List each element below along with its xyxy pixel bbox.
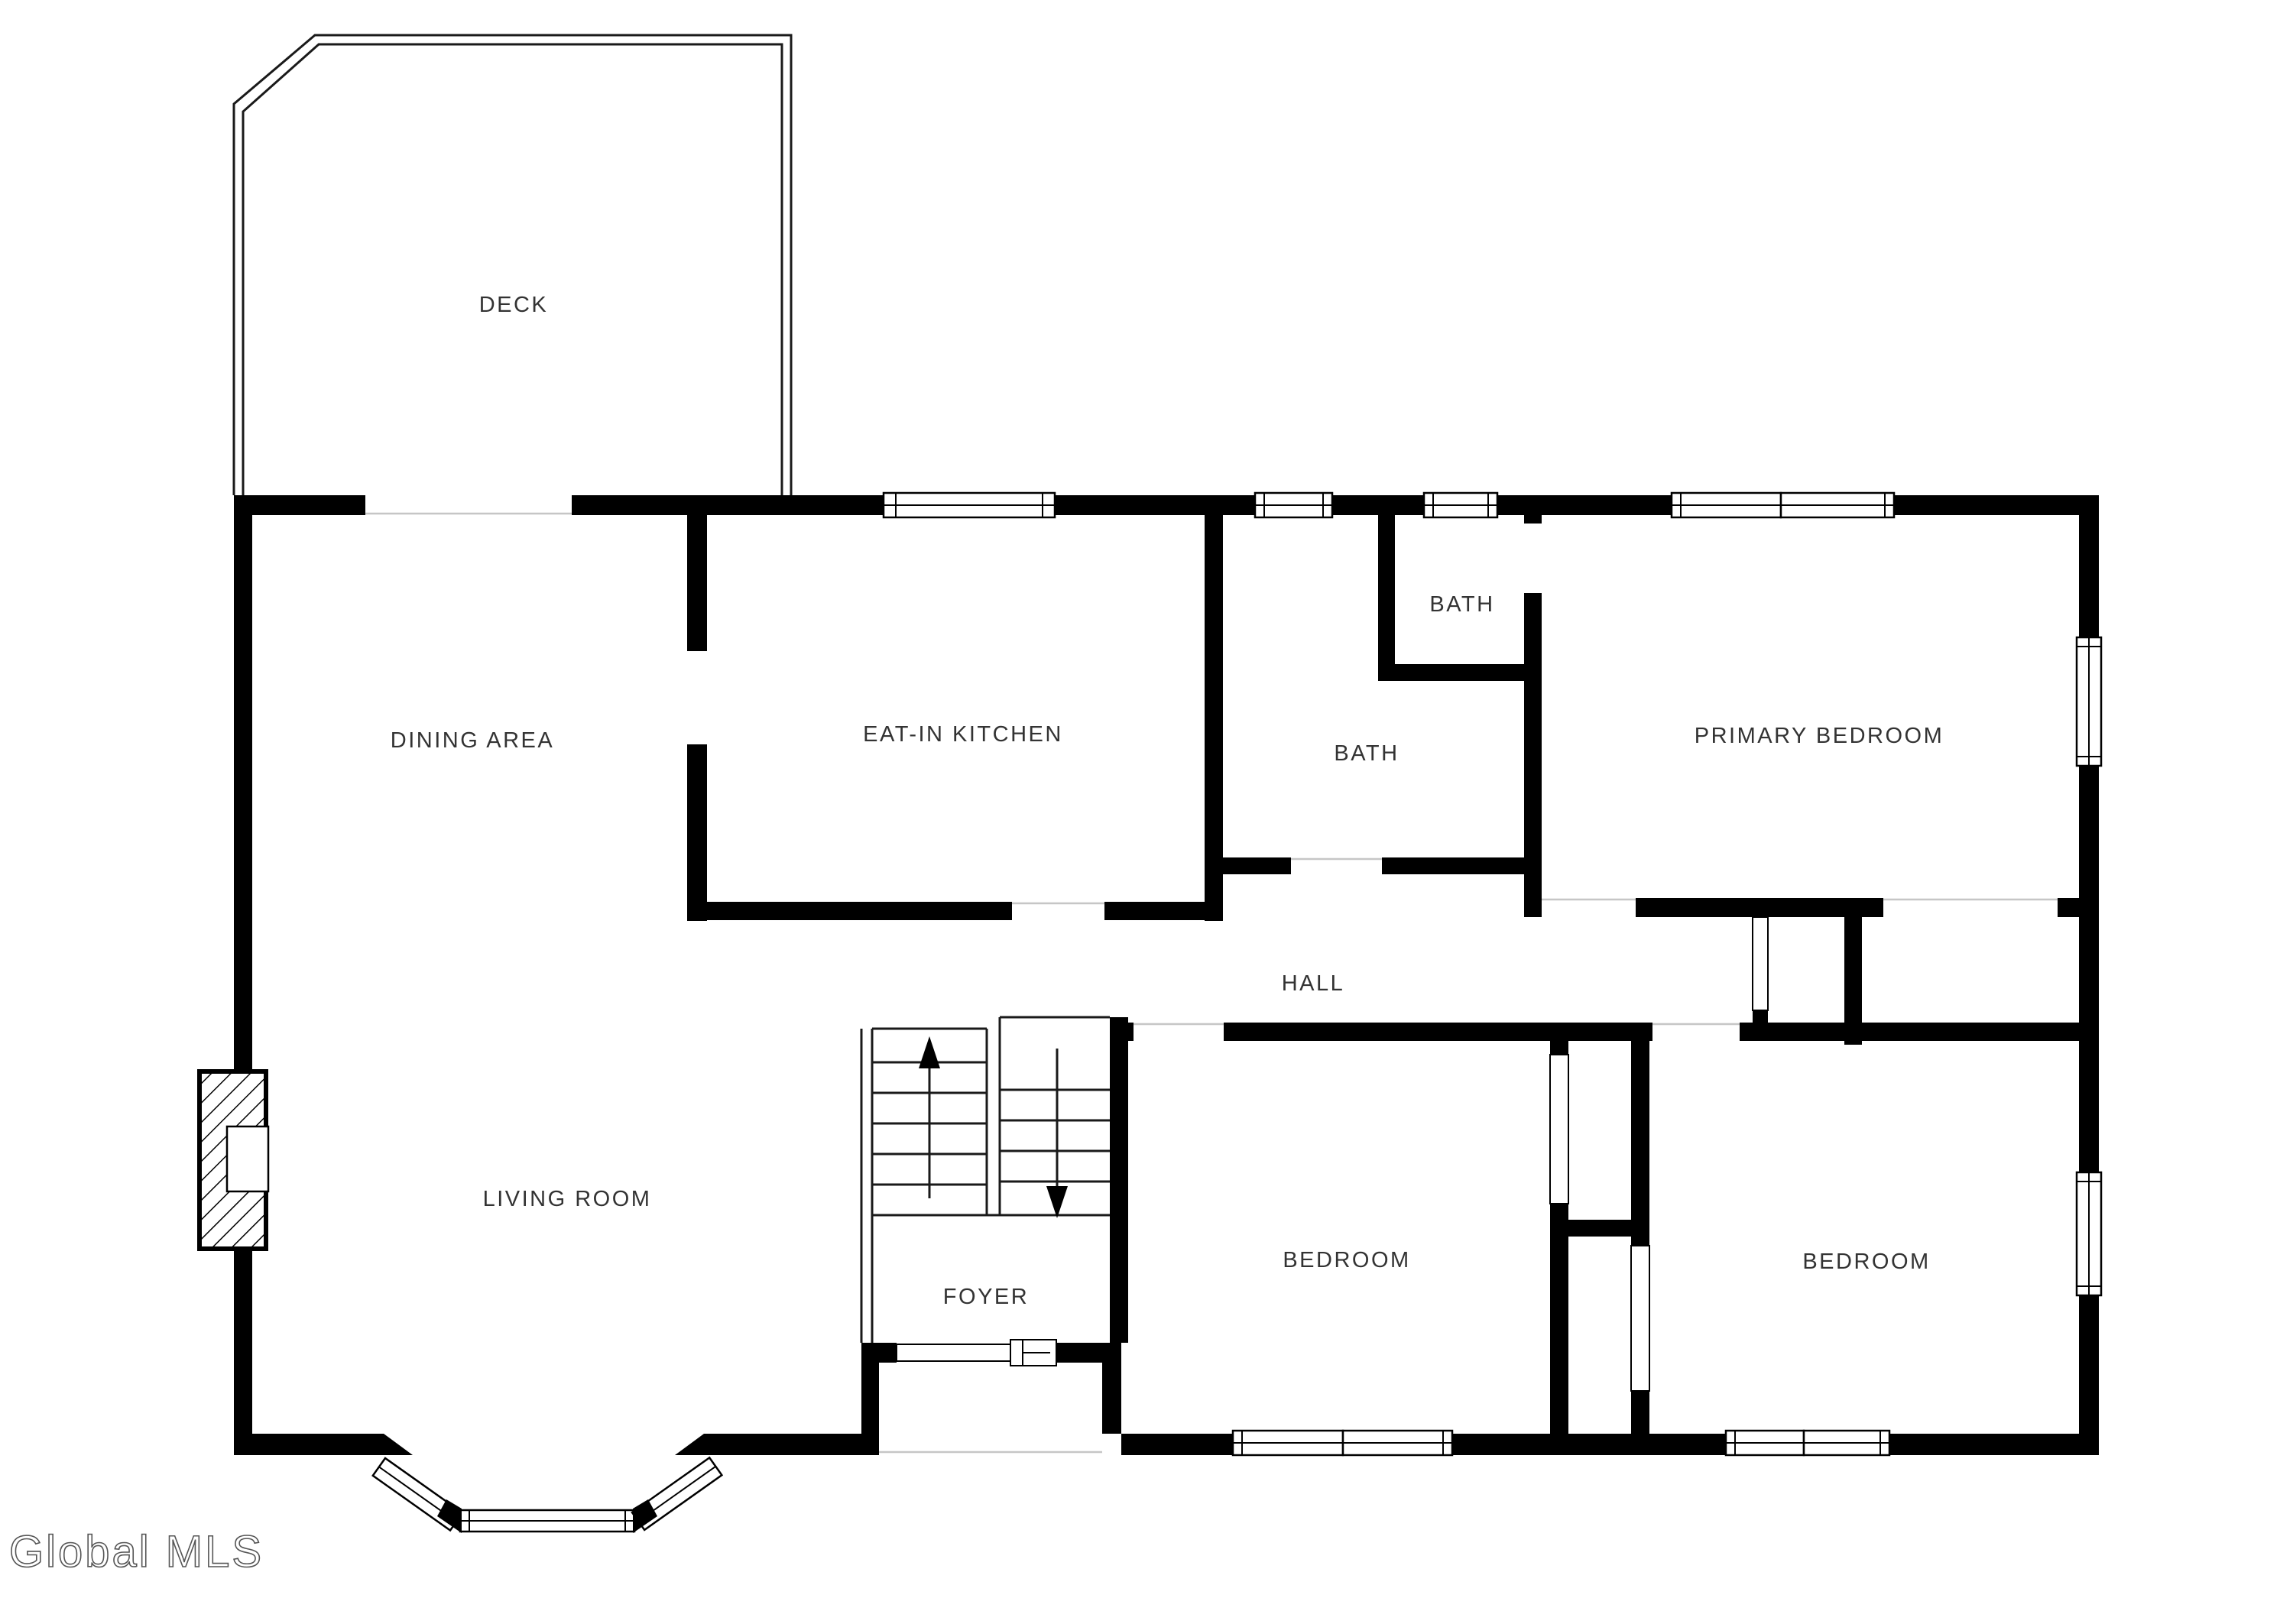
wall-stairs-right <box>1110 1017 1128 1343</box>
wall-bedroom1-right-stub <box>1550 1041 1568 1055</box>
wall-primary-south-right <box>2058 898 2099 917</box>
wall-bottom-between-bedrooms <box>1452 1434 1726 1455</box>
label-hall: HALL <box>1282 971 1345 996</box>
wall-upper-bath-bottom <box>1378 664 1542 681</box>
wall-primary-west <box>1524 593 1542 917</box>
primary-bedroom-double-window-top <box>1672 493 1894 517</box>
bay-window <box>373 1457 722 1533</box>
label-living-room: LIVING ROOM <box>483 1187 652 1211</box>
label-eat-in-kitchen: EAT-IN KITCHEN <box>863 722 1063 747</box>
wall-top-between-baths <box>1332 495 1424 515</box>
wall-bottom-bay-left <box>234 1434 413 1455</box>
label-bedroom-center: BEDROOM <box>1283 1248 1410 1272</box>
wall-primary-west-stub <box>1524 495 1542 524</box>
interior-walls <box>687 495 2099 1434</box>
stairs-down-arrow-icon <box>1046 1186 1068 1218</box>
wall-top-left-of-deck-door <box>234 495 365 515</box>
wall-bath-bottom-left <box>1205 857 1291 874</box>
label-bedroom-right: BEDROOM <box>1802 1250 1930 1274</box>
wall-right-upper <box>2079 495 2099 637</box>
wall-top-kitchen-left <box>572 495 884 515</box>
windows <box>373 493 2101 1533</box>
deck-outline <box>234 35 791 495</box>
exterior-walls <box>234 495 2099 1455</box>
wall-kitchen-left-lower <box>687 744 707 921</box>
label-deck: DECK <box>479 293 549 317</box>
fireplace-chimney <box>197 1069 268 1251</box>
bath-upper-window <box>1424 493 1497 517</box>
floor-plan-canvas: DECK DINING AREA EAT-IN KITCHEN BATH BAT… <box>0 0 2293 1624</box>
wall-bedroom2-left-upper <box>1631 1041 1649 1246</box>
bedroom2-side-window <box>2077 1172 2101 1295</box>
room-labels: DECK DINING AREA EAT-IN KITCHEN BATH BAT… <box>391 293 1944 1309</box>
wall-stoop-left <box>861 1363 879 1434</box>
bedroom2-double-window <box>1726 1431 1889 1455</box>
wall-bottom-bedroom2-right <box>1889 1434 2099 1455</box>
wall-bath-bottom-right <box>1382 857 1542 874</box>
wall-bottom-bedroom1-left <box>1121 1434 1233 1455</box>
wall-left-upper <box>234 495 252 1069</box>
label-dining-area: DINING AREA <box>391 728 554 753</box>
wall-bedroom2-top <box>1740 1023 2099 1041</box>
bedroom1-closet-door <box>1550 1055 1568 1204</box>
stairs-up-arrow-icon <box>919 1036 940 1068</box>
bedroom2-closet-door <box>1631 1246 1649 1391</box>
label-bath-upper: BATH <box>1429 592 1494 617</box>
hall-closet-door <box>1753 917 1768 1010</box>
wall-bedroom1-top <box>1224 1023 1652 1041</box>
wall-top-primary-left <box>1497 495 1672 515</box>
wall-bottom-bay-right <box>675 1434 879 1455</box>
bath-lower-window <box>1255 493 1332 517</box>
front-sidelight <box>897 1344 1010 1361</box>
label-primary-bedroom: PRIMARY BEDROOM <box>1695 724 1944 748</box>
wall-right-middle <box>2079 766 2099 1172</box>
wall-upper-bath-left <box>1378 515 1395 681</box>
wall-right-lower <box>2079 1295 2099 1455</box>
bedroom1-double-window <box>1233 1431 1452 1455</box>
wall-primary-south <box>1636 898 1883 917</box>
wall-hall-closet-stub <box>1753 1010 1768 1028</box>
label-foyer: FOYER <box>943 1285 1029 1309</box>
wall-left-lower <box>234 1251 252 1434</box>
kitchen-window <box>884 493 1055 517</box>
wall-kitchen-right <box>1205 495 1223 921</box>
floor-plan-page: DECK DINING AREA EAT-IN KITCHEN BATH BAT… <box>0 0 2293 1624</box>
wall-kitchen-bottom-left <box>687 902 1012 920</box>
wall-top-primary-right <box>1894 495 2099 515</box>
primary-bedroom-side-window <box>2077 637 2101 766</box>
wall-top-kitchen-right <box>1055 495 1255 515</box>
wall-foyer-bottom-right <box>1056 1343 1121 1363</box>
wall-bedroom2-left-lower <box>1631 1391 1649 1434</box>
label-bath-lower: BATH <box>1334 741 1399 766</box>
wall-foyer-bottom-left <box>861 1343 897 1363</box>
firebox <box>227 1126 268 1191</box>
global-mls-watermark: Global MLS <box>9 1527 264 1577</box>
wall-bedroom1-right <box>1550 1204 1568 1434</box>
wall-kitchen-left-upper <box>687 515 707 651</box>
